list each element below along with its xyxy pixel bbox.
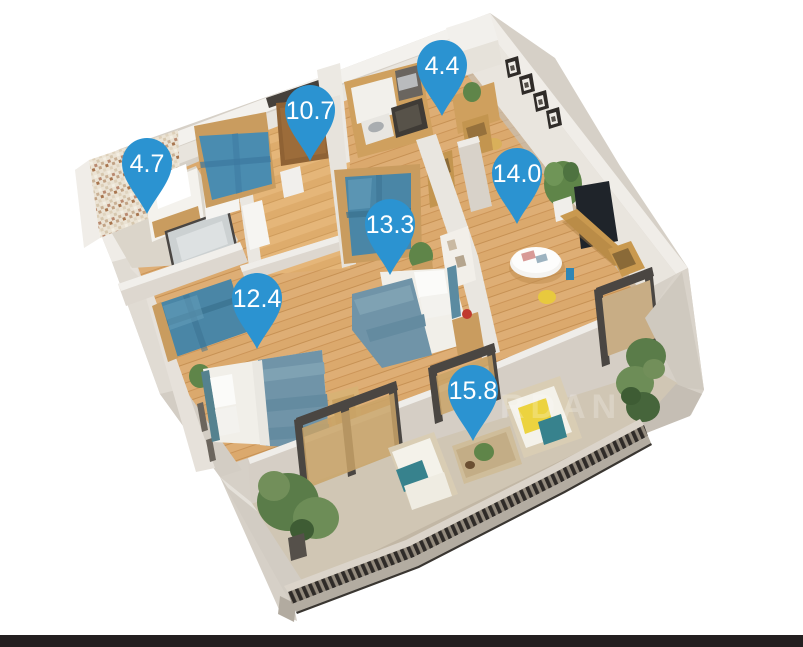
svg-text:15.8: 15.8 bbox=[449, 377, 498, 405]
svg-text:4.7: 4.7 bbox=[130, 150, 165, 178]
svg-text:12.4: 12.4 bbox=[233, 285, 282, 313]
svg-text:10.7: 10.7 bbox=[286, 97, 335, 125]
svg-text:14.0: 14.0 bbox=[493, 160, 542, 188]
svg-text:RDAN: RDAN bbox=[500, 388, 622, 426]
svg-text:4.4: 4.4 bbox=[425, 52, 460, 80]
svg-text:13.3: 13.3 bbox=[366, 211, 415, 239]
